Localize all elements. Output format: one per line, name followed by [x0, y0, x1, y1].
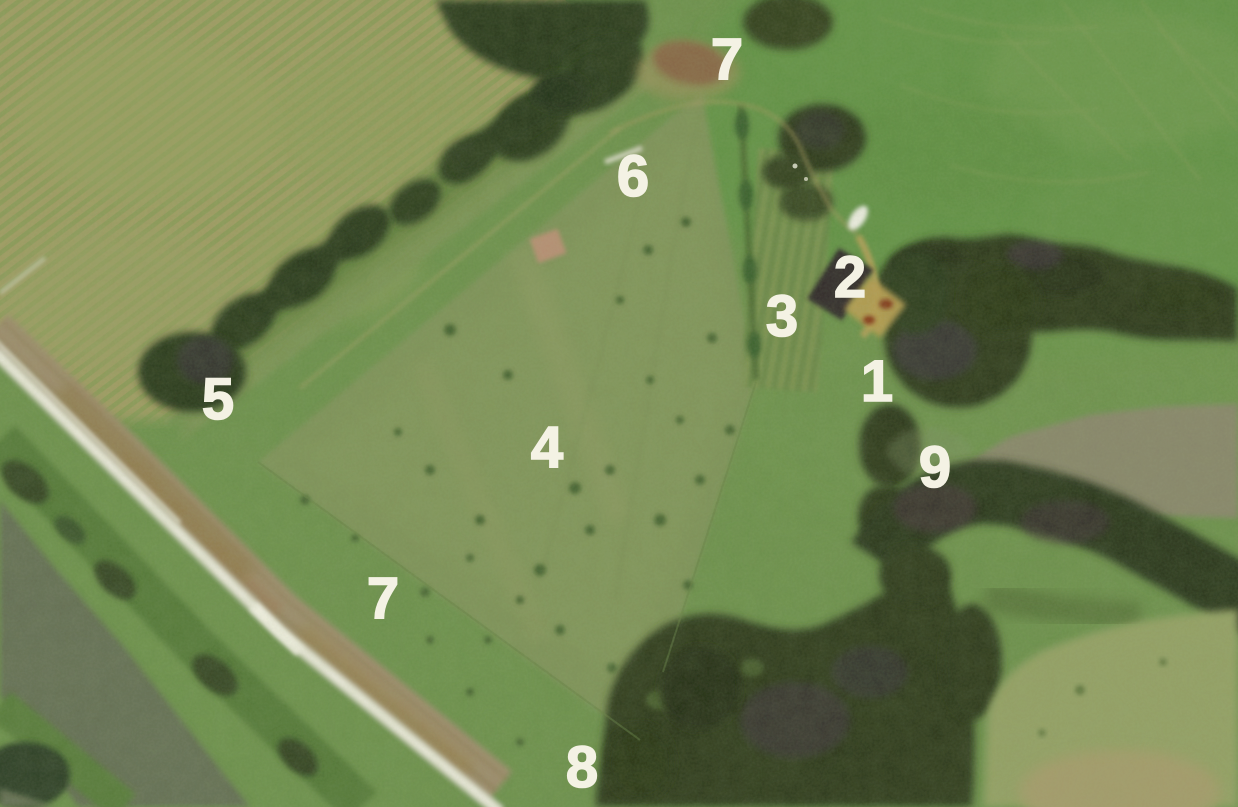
- svg-text:7: 7: [711, 27, 743, 92]
- svg-text:3: 3: [766, 284, 798, 349]
- svg-text:5: 5: [202, 367, 234, 432]
- svg-text:2: 2: [834, 245, 866, 310]
- svg-text:4: 4: [531, 415, 563, 480]
- svg-text:8: 8: [566, 735, 598, 800]
- svg-text:6: 6: [617, 144, 649, 209]
- svg-text:1: 1: [861, 349, 893, 414]
- svg-text:7: 7: [367, 566, 399, 631]
- svg-text:9: 9: [919, 435, 951, 500]
